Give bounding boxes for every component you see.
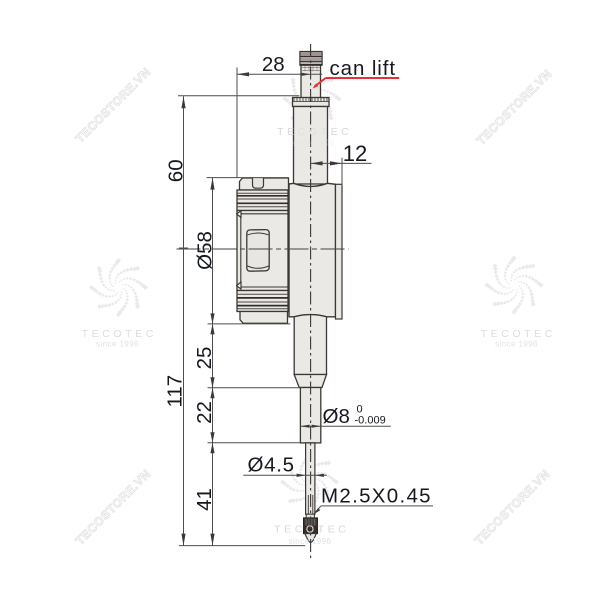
svg-text:since 1996: since 1996 bbox=[292, 139, 335, 148]
svg-text:since 1996: since 1996 bbox=[96, 340, 139, 349]
svg-text:TECOTEC: TECOTEC bbox=[274, 524, 349, 536]
svg-text:28: 28 bbox=[262, 53, 285, 76]
svg-text:25: 25 bbox=[193, 347, 216, 370]
svg-text:TECOTEC: TECOTEC bbox=[481, 328, 556, 340]
svg-text:M2.5X0.45: M2.5X0.45 bbox=[321, 485, 432, 508]
svg-text:60: 60 bbox=[164, 159, 187, 182]
svg-text:0: 0 bbox=[357, 403, 363, 415]
svg-text:can lift: can lift bbox=[330, 57, 396, 80]
svg-text:Ø4.5: Ø4.5 bbox=[248, 454, 295, 477]
svg-text:12: 12 bbox=[343, 141, 367, 166]
svg-text:since 1996: since 1996 bbox=[289, 537, 332, 546]
svg-text:TECOTEC: TECOTEC bbox=[82, 328, 157, 340]
svg-text:22: 22 bbox=[193, 401, 216, 424]
svg-text:since 1996: since 1996 bbox=[495, 340, 538, 349]
svg-text:TECOTEC: TECOTEC bbox=[277, 126, 352, 138]
svg-text:41: 41 bbox=[193, 488, 216, 511]
svg-text:117: 117 bbox=[163, 375, 186, 408]
svg-text:Ø8: Ø8 bbox=[323, 405, 350, 428]
svg-text:Ø58: Ø58 bbox=[193, 231, 216, 270]
svg-text:-0.009: -0.009 bbox=[355, 415, 386, 427]
